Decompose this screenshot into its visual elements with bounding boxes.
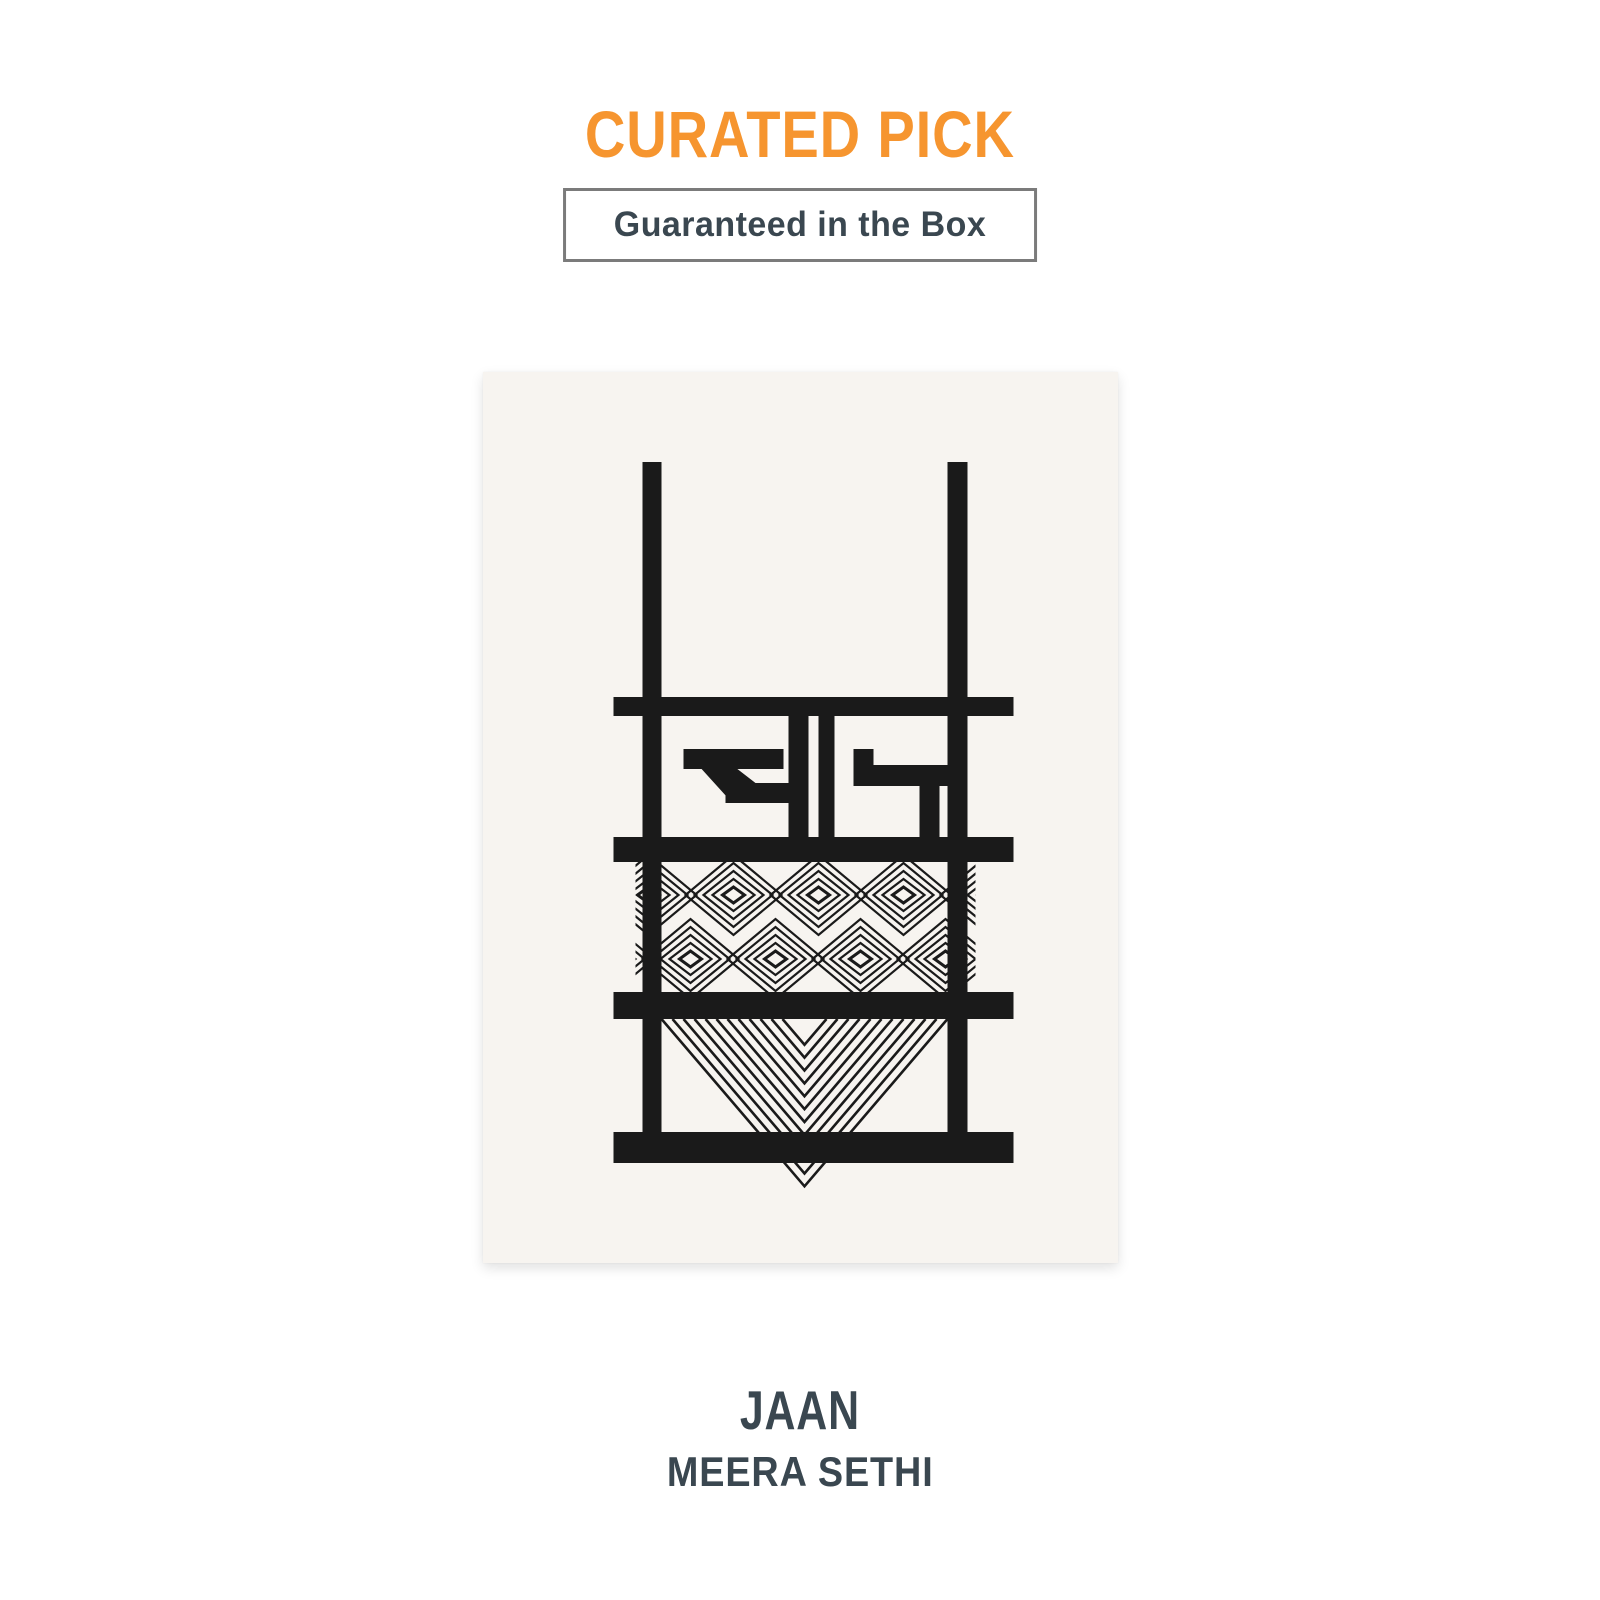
book-title: JAAN xyxy=(0,1378,1600,1442)
curated-pick-text: CURATED PICK xyxy=(585,96,1015,172)
devanagari-word xyxy=(684,715,948,854)
book-author: MEERA SETHI xyxy=(0,1448,1600,1496)
artwork-card xyxy=(483,372,1118,1263)
diamond-band xyxy=(558,855,1079,999)
curated-pick-page: CURATED PICK Guaranteed in the Box JAAN … xyxy=(0,0,1600,1600)
guaranteed-badge-label: Guaranteed in the Box xyxy=(614,205,986,245)
book-title-text: JAAN xyxy=(740,1378,860,1442)
book-author-text: MEERA SETHI xyxy=(667,1448,934,1496)
curated-pick-label: CURATED PICK xyxy=(0,96,1600,172)
guaranteed-badge: Guaranteed in the Box xyxy=(563,188,1037,262)
loom-illustration xyxy=(483,372,1118,1263)
